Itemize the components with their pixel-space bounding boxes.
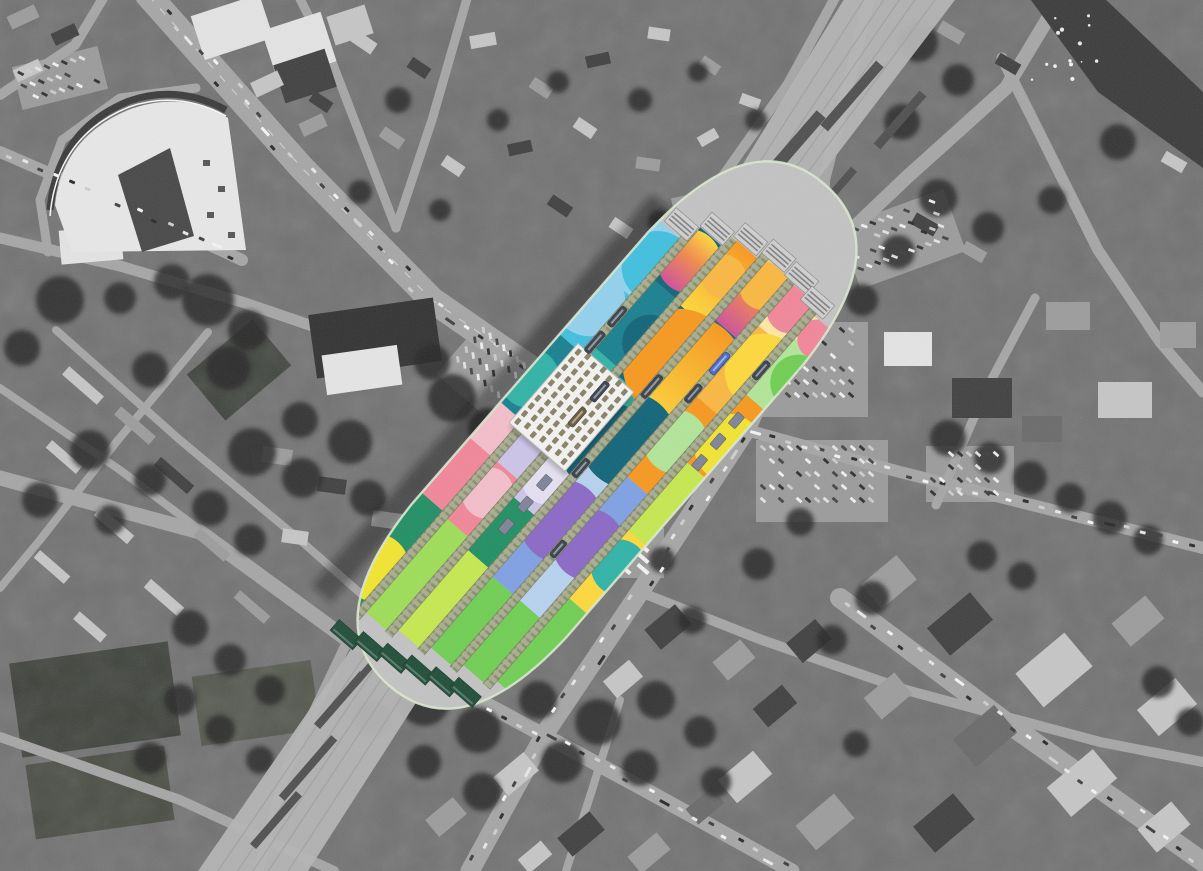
- aerial-map: [0, 0, 1203, 871]
- photo-grain: [0, 0, 1203, 871]
- satellite-scene: [0, 0, 1203, 871]
